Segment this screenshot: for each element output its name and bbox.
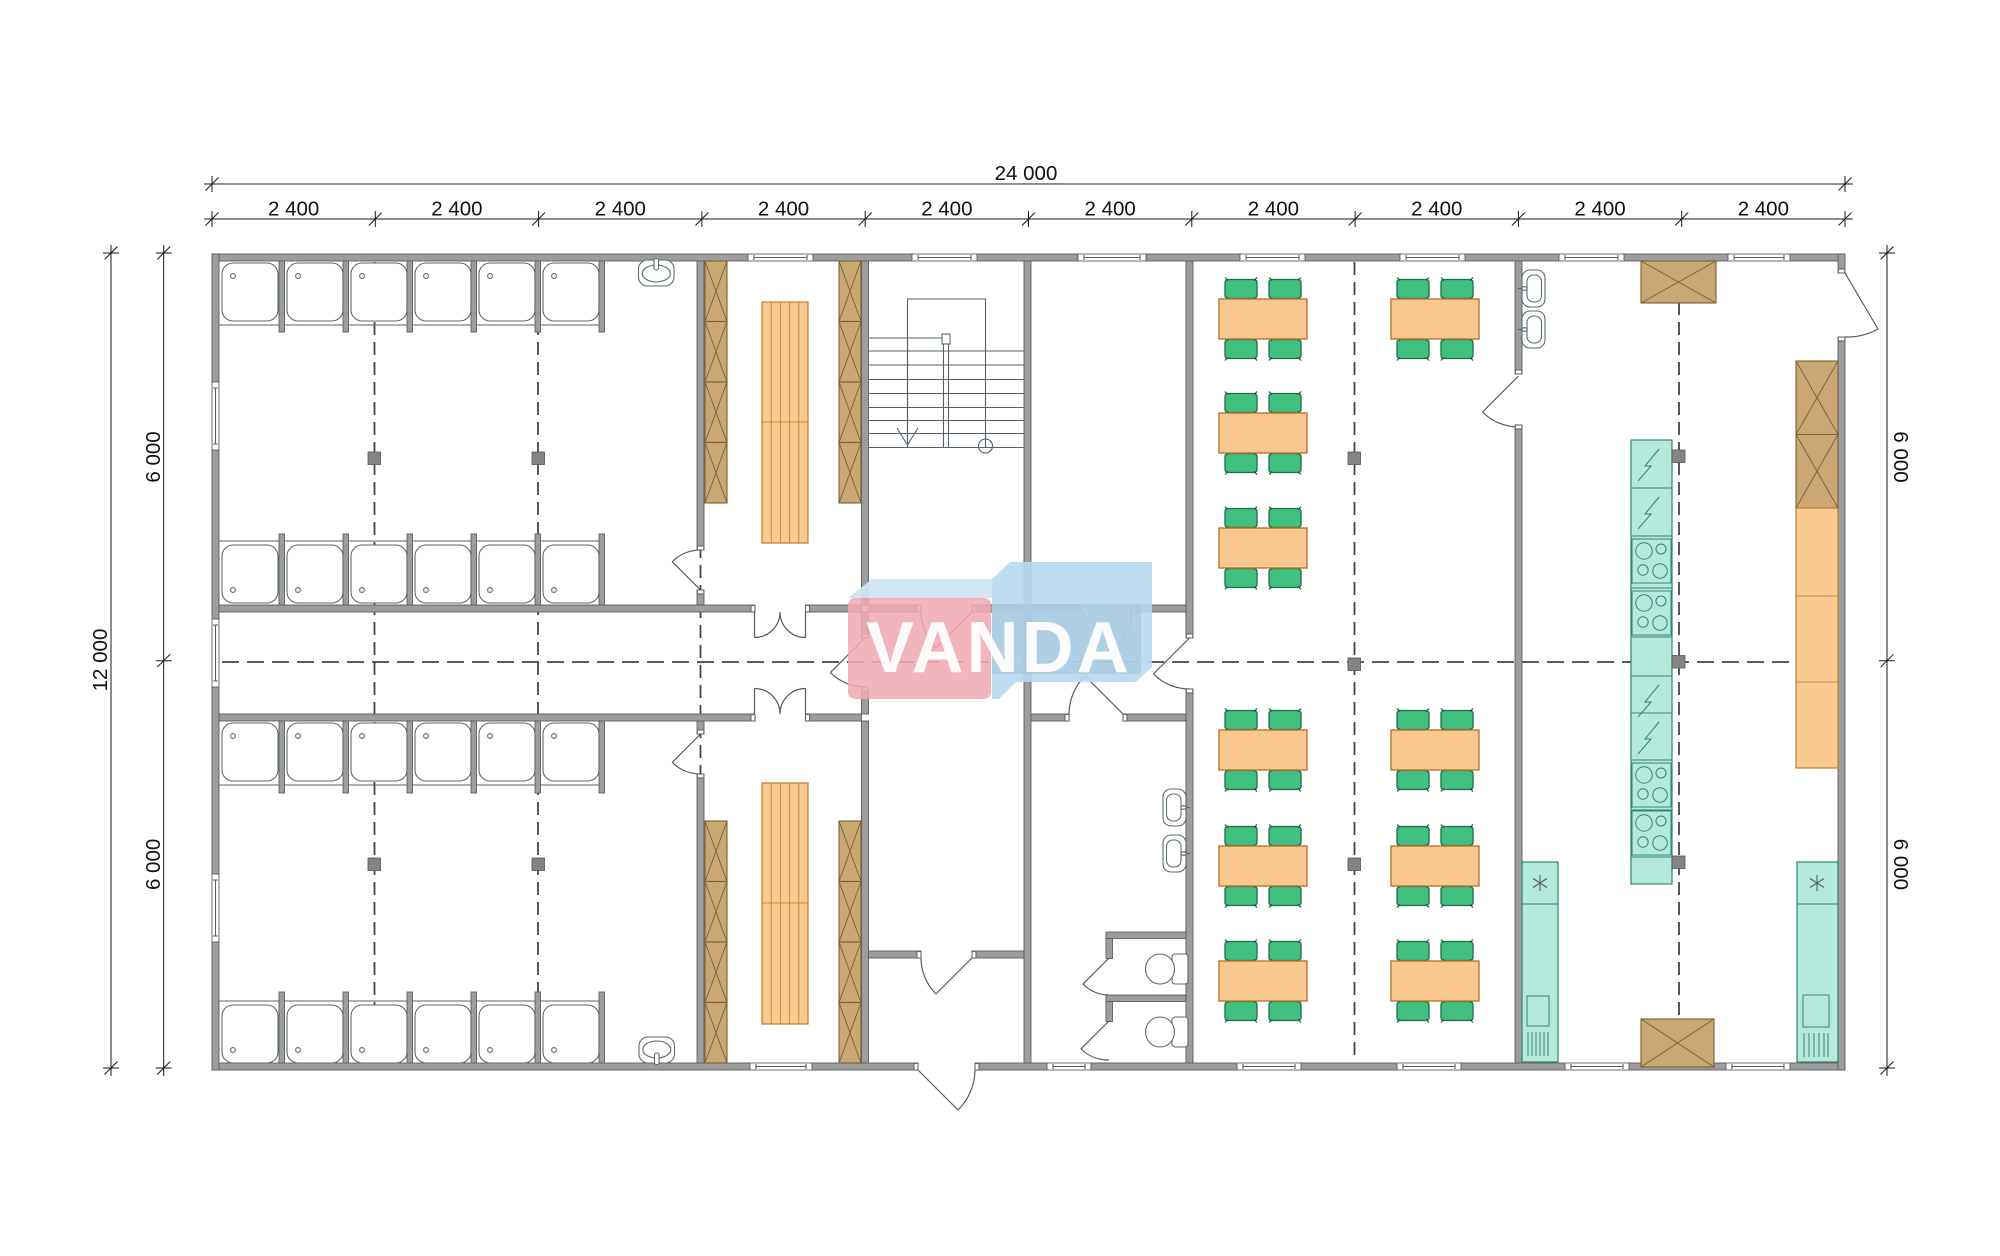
- svg-text:VANDA: VANDA: [866, 608, 1132, 688]
- svg-text:24 000: 24 000: [995, 162, 1058, 185]
- svg-text:2 400: 2 400: [431, 198, 482, 221]
- svg-text:2 400: 2 400: [1248, 198, 1299, 221]
- svg-text:2 400: 2 400: [1084, 198, 1135, 221]
- svg-text:2 400: 2 400: [1738, 198, 1789, 221]
- svg-text:6 000: 6 000: [142, 839, 165, 890]
- svg-text:2 400: 2 400: [268, 198, 319, 221]
- svg-text:12 000: 12 000: [89, 629, 112, 692]
- svg-text:2 400: 2 400: [1574, 198, 1625, 221]
- svg-text:6 000: 6 000: [142, 431, 165, 482]
- svg-text:6 000: 6 000: [1889, 839, 1912, 890]
- svg-text:2 400: 2 400: [921, 198, 972, 221]
- svg-text:2 400: 2 400: [1411, 198, 1462, 221]
- svg-text:2 400: 2 400: [758, 198, 809, 221]
- svg-text:6 000: 6 000: [1889, 431, 1912, 482]
- svg-text:2 400: 2 400: [595, 198, 646, 221]
